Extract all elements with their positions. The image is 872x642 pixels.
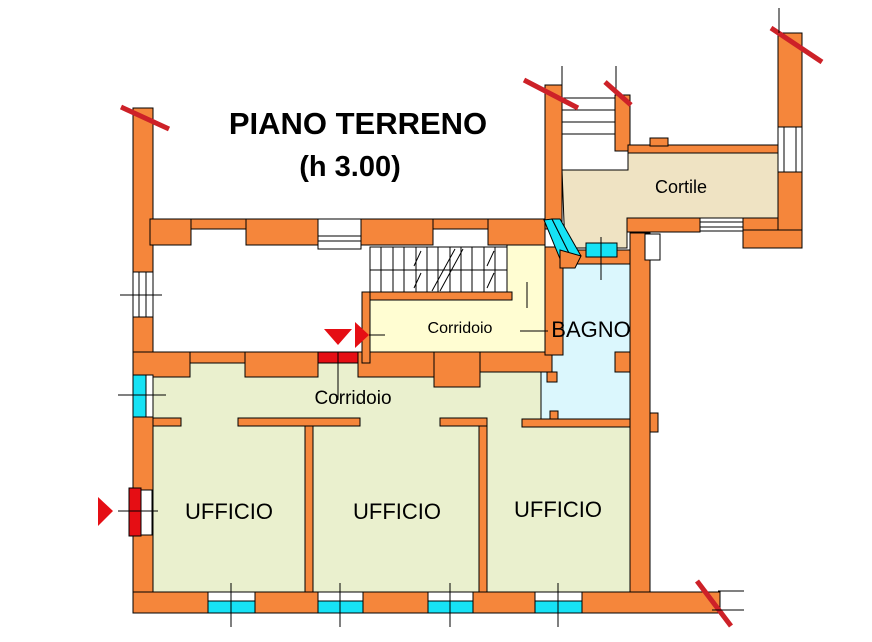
label-cortile: Cortile (655, 177, 707, 197)
stairs-interior (370, 247, 507, 293)
mid-wall-thin-1 (190, 352, 245, 363)
entry-door-left (129, 488, 141, 536)
stairs-entrance (562, 66, 616, 134)
top-wall-pillar-3 (361, 219, 433, 245)
office-partition-2 (479, 426, 487, 592)
corridor-left-thin-wall (362, 292, 370, 363)
bagno-door-jamb-2 (550, 411, 558, 419)
office-front-wall-1 (238, 418, 360, 426)
floor-plan: PIANO TERRENO (h 3.00) Cortile Corridoio… (0, 0, 872, 642)
bagno-door-jamb-1 (547, 372, 557, 382)
label-corridoio-lower: Corridoio (314, 388, 391, 409)
right-wall-notch (645, 234, 660, 260)
cortile-bottom-window (700, 218, 743, 231)
cortile-top-wall-nub (650, 138, 668, 146)
stairs-bottom-wall (362, 292, 512, 300)
entry-door-leaf (141, 490, 152, 535)
label-ufficio-1: UFFICIO (185, 499, 273, 524)
cortile-corner-block (743, 230, 802, 248)
cortile-bottom-wall-left (627, 218, 700, 232)
label-corridoio-upper: Corridoio (428, 320, 493, 337)
top-wall-pillar-1 (150, 219, 191, 245)
label-ufficio-2: UFFICIO (353, 499, 441, 524)
bagno-bottom-thin-wall (522, 419, 630, 427)
top-wall-pillar-4 (488, 219, 545, 245)
label-ufficio-3: UFFICIO (514, 497, 602, 522)
office1-front-stub (153, 418, 181, 426)
bagno-mid-pillar (615, 352, 630, 372)
page-title: PIANO TERRENO (229, 106, 487, 141)
page-subtitle: (h 3.00) (299, 151, 401, 183)
office-front-wall-2 (440, 418, 487, 426)
label-bagno: BAGNO (551, 317, 630, 342)
mid-wall-block-4 (480, 352, 552, 372)
entry-arrow-icon (98, 497, 113, 526)
mid-wall-block-2 (245, 352, 318, 377)
top-wall-window (318, 219, 361, 249)
cortile-right-window (778, 127, 802, 172)
floor-plan-canvas: PIANO TERRENO (h 3.00) Cortile Corridoio… (0, 0, 872, 642)
stairwell-left-wall (545, 85, 562, 229)
mid-wall-pillar (434, 352, 480, 387)
top-wall-pillar-2 (246, 219, 318, 245)
right-exterior-wall (630, 233, 650, 592)
right-wall-nub (650, 413, 658, 432)
office-partition-1 (305, 426, 313, 592)
left-wall-window-cyan (133, 375, 146, 417)
left-window-inner (146, 375, 153, 417)
mid-wall-block-1 (133, 352, 190, 377)
